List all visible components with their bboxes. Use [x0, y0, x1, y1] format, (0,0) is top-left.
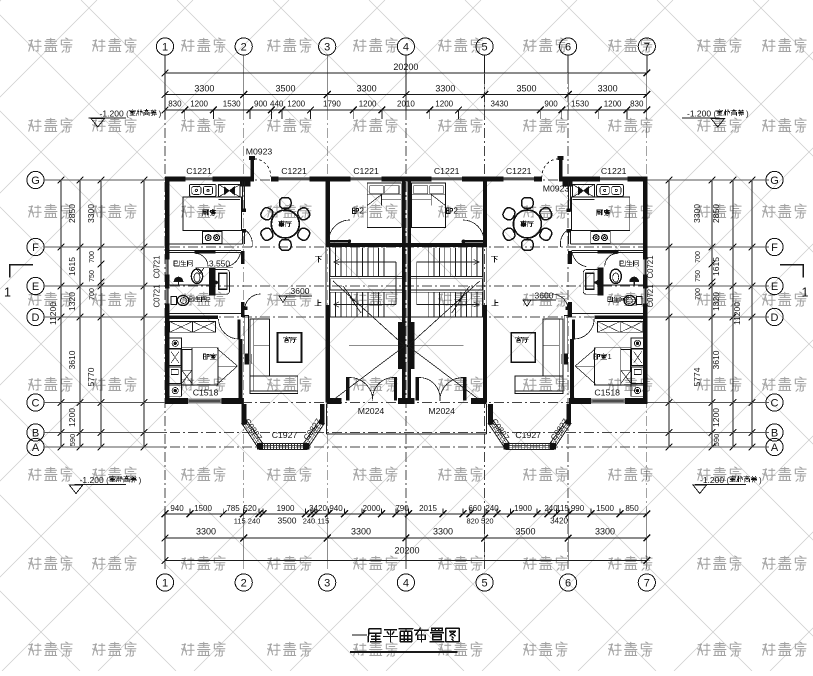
- svg-text:C0721: C0721: [153, 256, 162, 279]
- svg-text:3300: 3300: [433, 527, 453, 537]
- svg-text:1: 1: [607, 352, 611, 361]
- svg-text:3300: 3300: [357, 84, 377, 94]
- svg-text:1320: 1320: [67, 292, 77, 311]
- svg-text:5: 5: [482, 577, 488, 589]
- svg-text:3420: 3420: [550, 517, 568, 526]
- svg-text:820 520: 820 520: [466, 517, 493, 526]
- svg-text:D: D: [771, 312, 779, 324]
- svg-text:1: 1: [162, 577, 168, 589]
- svg-text:700: 700: [89, 251, 96, 263]
- svg-text:7: 7: [644, 41, 650, 53]
- svg-text:3: 3: [324, 41, 330, 53]
- svg-text:3300: 3300: [692, 204, 702, 223]
- svg-text:B: B: [771, 427, 778, 439]
- svg-text:1500: 1500: [194, 504, 212, 513]
- svg-text:1200: 1200: [67, 408, 77, 427]
- svg-text:G: G: [31, 175, 40, 187]
- svg-text:F: F: [32, 242, 39, 254]
- svg-text:3600: 3600: [535, 291, 554, 301]
- svg-text:C1927: C1927: [515, 430, 541, 440]
- svg-text:-1.200: -1.200: [80, 475, 104, 485]
- svg-text:1200: 1200: [190, 100, 208, 109]
- svg-text:C1518: C1518: [193, 388, 219, 398]
- svg-text:F: F: [771, 242, 778, 254]
- svg-text:): ): [159, 110, 162, 119]
- svg-text:2: 2: [625, 297, 629, 304]
- svg-text:1900: 1900: [277, 504, 295, 513]
- svg-text:C0721: C0721: [646, 256, 655, 279]
- svg-text:590: 590: [712, 434, 721, 447]
- svg-text:1900: 1900: [514, 504, 532, 513]
- svg-text:1500: 1500: [596, 504, 614, 513]
- svg-text:-1.200: -1.200: [687, 109, 711, 119]
- svg-text:5770: 5770: [86, 367, 96, 386]
- svg-text:3300: 3300: [351, 527, 371, 537]
- svg-text:1530: 1530: [571, 100, 589, 109]
- svg-text:3500: 3500: [275, 84, 295, 94]
- svg-text:590: 590: [68, 434, 77, 447]
- svg-text:M2024: M2024: [428, 406, 455, 416]
- svg-text:700: 700: [695, 288, 702, 300]
- svg-text:1615: 1615: [67, 257, 77, 276]
- svg-text:2015: 2015: [419, 504, 437, 513]
- svg-text:): ): [746, 110, 749, 119]
- svg-text:750: 750: [695, 270, 702, 282]
- svg-text:4: 4: [403, 577, 409, 589]
- svg-text:1200: 1200: [711, 408, 721, 427]
- svg-text:2000: 2000: [363, 504, 381, 513]
- svg-text:2: 2: [359, 207, 364, 216]
- svg-text:3420: 3420: [309, 504, 327, 513]
- svg-text:240 115: 240 115: [303, 517, 330, 526]
- svg-text:850: 850: [625, 504, 639, 513]
- svg-text:3300: 3300: [595, 527, 615, 537]
- svg-text:20200: 20200: [393, 62, 418, 72]
- svg-text:900: 900: [254, 100, 268, 109]
- svg-text:(: (: [126, 110, 129, 119]
- svg-text:C1221: C1221: [601, 166, 627, 176]
- svg-text:3500: 3500: [278, 516, 297, 526]
- svg-text:C0721: C0721: [153, 285, 162, 308]
- svg-text:830: 830: [168, 100, 182, 109]
- svg-text:20200: 20200: [394, 546, 419, 556]
- svg-text:1200: 1200: [287, 100, 305, 109]
- svg-text:1790: 1790: [323, 100, 341, 109]
- svg-text:C1927: C1927: [272, 430, 298, 440]
- svg-text:7: 7: [644, 577, 650, 589]
- svg-text:D: D: [32, 312, 40, 324]
- svg-text:2: 2: [241, 41, 247, 53]
- svg-text:1: 1: [802, 286, 809, 300]
- svg-text:900: 900: [544, 100, 558, 109]
- svg-text:-1.200: -1.200: [100, 109, 124, 119]
- svg-text:1530: 1530: [223, 100, 241, 109]
- svg-text:3300: 3300: [435, 84, 455, 94]
- svg-text:(: (: [714, 110, 717, 119]
- svg-text:2850: 2850: [67, 204, 77, 223]
- svg-text:3500: 3500: [516, 84, 536, 94]
- svg-text:700: 700: [695, 251, 702, 263]
- svg-text:C1221: C1221: [506, 166, 532, 176]
- svg-text:1200: 1200: [359, 100, 377, 109]
- svg-text:M2024: M2024: [358, 406, 385, 416]
- svg-text:115 240: 115 240: [234, 517, 261, 526]
- svg-text:C1221: C1221: [434, 166, 460, 176]
- svg-text:C1221: C1221: [281, 166, 307, 176]
- svg-text:750: 750: [89, 270, 96, 282]
- svg-text:E: E: [771, 281, 778, 293]
- svg-text:700: 700: [89, 288, 96, 300]
- svg-text:2: 2: [453, 207, 458, 216]
- svg-text:4: 4: [403, 41, 409, 53]
- svg-text:440: 440: [270, 100, 284, 109]
- svg-text:): ): [139, 476, 142, 485]
- svg-text:5: 5: [482, 41, 488, 53]
- svg-text:1615: 1615: [711, 257, 721, 276]
- svg-text:A: A: [32, 442, 40, 454]
- svg-text:6: 6: [565, 577, 571, 589]
- svg-text:2: 2: [207, 296, 211, 303]
- svg-text:C0721: C0721: [646, 285, 655, 308]
- svg-text:C: C: [32, 397, 40, 409]
- svg-text:940: 940: [170, 504, 184, 513]
- svg-text:C: C: [771, 397, 779, 409]
- svg-text:M0923: M0923: [246, 147, 273, 157]
- svg-text:2850: 2850: [711, 204, 721, 223]
- svg-text:-1.200: -1.200: [700, 475, 724, 485]
- svg-text:3610: 3610: [711, 350, 721, 369]
- svg-text:3: 3: [324, 577, 330, 589]
- svg-text:): ): [759, 476, 762, 485]
- svg-text:G: G: [770, 175, 779, 187]
- svg-text:E: E: [32, 281, 39, 293]
- svg-text:660: 660: [468, 504, 482, 513]
- svg-text:1200: 1200: [604, 100, 622, 109]
- svg-text:3600: 3600: [291, 286, 310, 296]
- svg-text:3610: 3610: [67, 350, 77, 369]
- svg-text:3300: 3300: [196, 527, 216, 537]
- svg-text:C1221: C1221: [353, 166, 379, 176]
- svg-text:5774: 5774: [692, 367, 702, 386]
- svg-text:1200: 1200: [435, 100, 453, 109]
- svg-text:785: 785: [226, 504, 240, 513]
- svg-text:6: 6: [565, 41, 571, 53]
- svg-text:1: 1: [4, 286, 11, 300]
- svg-text:A: A: [771, 442, 779, 454]
- svg-text:1320: 1320: [711, 292, 721, 311]
- svg-text:11200: 11200: [732, 302, 742, 325]
- svg-text:990: 990: [571, 504, 585, 513]
- svg-text:3430: 3430: [491, 100, 509, 109]
- svg-text:790: 790: [395, 504, 409, 513]
- svg-text:3500: 3500: [515, 527, 535, 537]
- svg-text:B: B: [32, 427, 39, 439]
- svg-text:3.550: 3.550: [209, 259, 231, 269]
- svg-text:3300: 3300: [86, 204, 96, 223]
- svg-text:M0923: M0923: [543, 184, 570, 194]
- svg-text:C1518: C1518: [594, 388, 620, 398]
- svg-text:1: 1: [162, 41, 168, 53]
- svg-text:3300: 3300: [194, 84, 214, 94]
- svg-text:(: (: [106, 476, 109, 485]
- svg-text:830: 830: [630, 100, 644, 109]
- svg-text:2: 2: [241, 577, 247, 589]
- svg-text:(: (: [727, 476, 730, 485]
- svg-text:3300: 3300: [598, 84, 618, 94]
- svg-text:11200: 11200: [48, 302, 58, 325]
- svg-text:C1221: C1221: [186, 166, 212, 176]
